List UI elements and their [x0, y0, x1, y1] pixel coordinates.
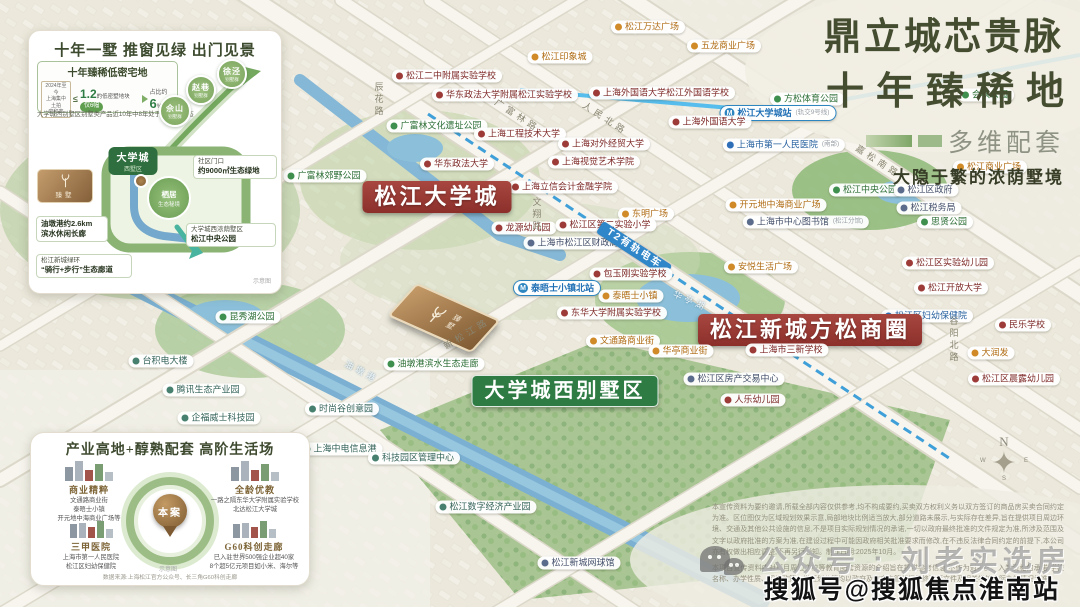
block-education: 全龄优教 一路之隔东华大学附属实验学校 北达松江大学城: [205, 459, 305, 514]
block-hospital: 三甲医院 上海市第一人民医院 松江区妇幼保健院: [41, 523, 141, 571]
block-heading: 全龄优教: [205, 483, 305, 496]
map-label-school: 上海对外经贸大学: [558, 138, 650, 151]
zone-name: 大学城: [117, 149, 150, 164]
callout-greenring: 松江新城绿环 “骑行+步行”生态廊道: [36, 254, 132, 278]
callout-line: 滨水休闲长廊: [41, 229, 103, 239]
map-label-roadv: 文翔路: [532, 197, 541, 233]
tree-logo-icon: [59, 173, 72, 188]
sohu-watermark: 搜狐号@搜狐焦点淮南站: [764, 570, 1060, 606]
map-label-park: 油墩港滨水生态走廊: [383, 358, 484, 371]
belt-name: 徐泾: [223, 66, 241, 77]
headline: 鼎立城芯贵脉 十年臻稀地 多维配套 大隐于繁的浓荫墅境: [824, 6, 1064, 188]
map-label-com: 文通路商业街: [586, 335, 660, 348]
callout-park: 大学城西浓荫墅区 松江中央公园: [186, 223, 276, 247]
map-label-school: 华东政法大学: [420, 158, 494, 171]
map-label-biz: 腾讯生态产业园: [162, 384, 245, 397]
industry-inset-card: 产业高地+醇熟配套 高阶生活场 本案 商业精粹 文通路商业街 泰晤士小镇 开元地…: [30, 432, 310, 586]
map-label-park: 思贤公园: [917, 216, 973, 229]
block-heading: 三甲医院: [41, 540, 141, 553]
map-label-com: 开元地中海商业广场: [725, 199, 826, 212]
map-label-school: 龙源幼儿园: [491, 222, 556, 235]
map-label-school: 上海市三新学校: [745, 344, 828, 357]
brand-logo-card: 臻墅: [37, 169, 93, 203]
map-label-school: 上海立信会计金融学院: [508, 181, 618, 194]
data-source-note: 数据来源:上海松江官方公众号、长三角G60科创走廊: [31, 572, 309, 581]
map-label-biz: 企福威士科技园: [177, 412, 260, 425]
callout-line: 约9000㎡生态绿地: [198, 166, 272, 176]
headline-tagline: 大隐于繁的浓荫墅境: [824, 163, 1064, 188]
map-label-roadv: 谷阳北路: [949, 316, 958, 364]
map-label-com: 安悦生活广场: [724, 261, 798, 274]
map-label-park: 昆秀湖公园: [215, 311, 280, 324]
eco-line2: 生态秘境: [158, 200, 180, 208]
block-line: 上海市第一人民医院: [41, 553, 141, 562]
map-label-gov: 松江税务局: [896, 202, 961, 215]
map-label-school: 上海工程技术大学: [474, 128, 566, 141]
block-g60: G60科创走廊 已入驻世界500强企业超40家 8个超5亿元项目如小米、海尔等: [203, 523, 305, 571]
block-line: 开元地中海商业广场等: [41, 514, 137, 523]
zone-sub: 西墅区: [117, 164, 150, 173]
map-label-bigred: 松江新城方松商圈: [698, 314, 922, 346]
map-label-school: 松江开放大学: [914, 282, 988, 295]
buildings-art: [41, 459, 137, 481]
callout-gate: 社区门口 约9000㎡生态绿地: [193, 155, 277, 179]
map-label-biz: 松江数字经济产业园: [435, 501, 536, 514]
map-label-park: 广富林郊野公园: [283, 170, 366, 183]
eco-line1: 栖居: [162, 189, 177, 200]
block-line: 已入驻世界500强企业超40家: [203, 553, 305, 562]
promo-map-poster: 臻墅 松江万达广场五龙商业广场松江印象城松江二中附属实验学校华东政法大学附属松江…: [0, 0, 1080, 607]
map-label-school: 上海外国语大学: [668, 116, 751, 129]
block-heading: G60科创走廊: [203, 540, 305, 553]
headline-line1: 鼎立城芯贵脉: [824, 6, 1064, 60]
callout-line: “骑行+步行”生态廊道: [41, 265, 127, 275]
map-label-school: 包玉刚实验学校: [589, 268, 672, 281]
map-label-roadv: 辰花路: [374, 82, 383, 118]
map-label-school: 上海视觉艺术学院: [548, 156, 640, 169]
map-label-road: 新松江路: [442, 317, 491, 352]
map-label-water: 华亭湖: [672, 290, 709, 313]
zone-pill: 大学城 西墅区: [109, 147, 158, 175]
map-label-metro: 泰晤士小镇北站: [513, 280, 601, 296]
villa-belt-sheshan: 佘山 别墅群: [159, 95, 191, 127]
buildings-art: [205, 459, 305, 481]
block-commerce: 商业精粹 文通路商业街 泰晤士小镇 开元地中海商业广场等: [41, 459, 137, 523]
map-label-com: 大润发: [967, 347, 1014, 360]
schematic-note: 示意图: [253, 276, 271, 285]
map-label-school: 松江区晨露幼儿园: [968, 373, 1060, 386]
map-label-biggreen: 大学城西别墅区: [472, 375, 659, 407]
callout-line: 松江中央公园: [191, 234, 271, 244]
block-line: 文通路商业街: [41, 496, 137, 505]
buildings-art: [41, 523, 141, 538]
headline-subtitle: 多维配套: [948, 123, 1064, 159]
map-label-school: 松江区实验幼儿园: [902, 257, 994, 270]
block-heading: 商业精粹: [41, 483, 137, 496]
map-label-school: 华东政法大学附属松江实验学校: [432, 89, 578, 102]
map-label-gov: 松江区房产交易中心: [683, 373, 784, 386]
accent-bar: [918, 135, 942, 147]
block-line: 一路之隔东华大学附属实验学校: [205, 496, 305, 505]
map-label-school: 民乐学校: [995, 319, 1051, 332]
accent-bar: [866, 135, 912, 147]
site-dot: [134, 174, 148, 188]
belt-name: 赵巷: [192, 82, 210, 93]
eco-inset-card: 十年一墅 推窗见绿 出门见景 十年臻稀低密宅地 2024年至今 上海集中土拍 容…: [28, 30, 282, 294]
belt-tag: 别墅群: [168, 114, 182, 120]
belt-tag: 别墅群: [194, 93, 208, 99]
map-label-com: 五龙商业广场: [687, 40, 761, 53]
map-label-biz: 时尚谷创意园: [305, 403, 379, 416]
map-label-school: 东华大学附属实验学校: [557, 307, 667, 320]
map-label-road: 人民北路: [581, 101, 630, 137]
map-label-com: 华亭商业街: [648, 345, 713, 358]
block-line: 8个超5亿元项目如小米、海尔等: [203, 562, 305, 571]
headline-line2: 十年臻稀地: [824, 60, 1076, 115]
map-label-school: 松江二中附属实验学校: [392, 70, 502, 83]
map-label-gov: 松江新城网球馆: [537, 557, 620, 570]
map-label-biz: 台积电大楼: [128, 355, 193, 368]
map-label-biz: 科技园区管理中心: [368, 452, 460, 465]
map-label-school: 上海外国语大学松江外国语学校: [589, 87, 735, 100]
wechat-icon: [724, 558, 744, 575]
block-line: 北达松江大学城: [205, 505, 305, 514]
map-label-park: 广富林文化遗址公园: [386, 120, 487, 133]
block-line: 泰晤士小镇: [41, 505, 137, 514]
map-label-com: 松江万达广场: [611, 21, 685, 34]
villa-belt-xujing: 徐泾 别墅群: [217, 59, 247, 89]
villa-belt-zhaoxiang: 赵巷 别墅群: [186, 75, 216, 105]
block-line: 松江区妇幼保健院: [41, 562, 141, 571]
map-label-com: 泰晤士小镇: [598, 290, 663, 303]
eco-circle: 栖居 生态秘境: [147, 176, 191, 220]
belt-tag: 别墅群: [225, 77, 239, 83]
site-pin: 本案: [153, 494, 187, 528]
brand-logo-text: 臻墅: [56, 189, 75, 199]
map-label-water: 油墩港: [343, 360, 379, 385]
map-label-gov: 上海市中心图书馆(松江分馆): [743, 216, 869, 229]
callout-river: 油墩港约2.6km 滨水休闲长廊: [36, 216, 108, 242]
inset-title: 产业高地+醇熟配套 高阶生活场: [31, 439, 309, 459]
map-label-com: 松江印象城: [527, 51, 592, 64]
callout-line: 油墩港约2.6km: [41, 219, 103, 229]
map-label-school: 人乐幼儿园: [720, 394, 785, 407]
map-label-bigred: 松江大学城: [362, 181, 511, 213]
buildings-art: [203, 523, 305, 538]
belt-name: 佘山: [166, 103, 184, 114]
